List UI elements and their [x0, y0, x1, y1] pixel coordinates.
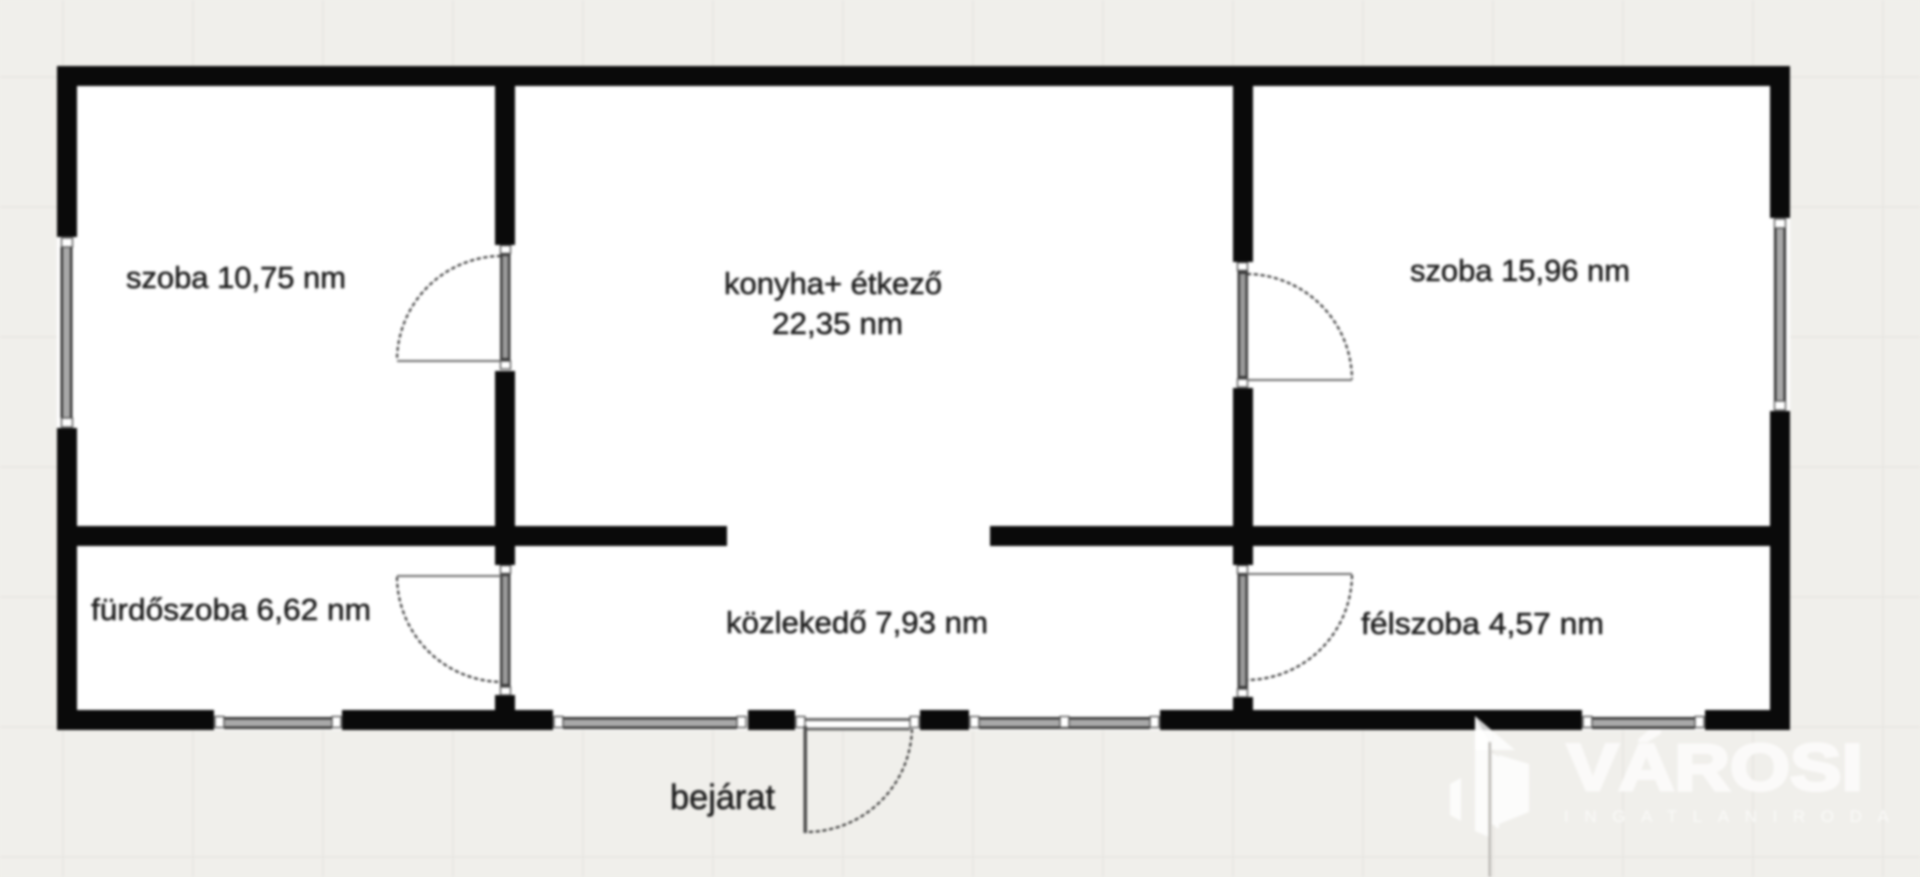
- svg-text:fürdőszoba 6,62 nm: fürdőszoba 6,62 nm: [91, 592, 371, 627]
- svg-text:félszoba 4,57 nm: félszoba 4,57 nm: [1361, 606, 1604, 641]
- svg-text:22,35 nm: 22,35 nm: [772, 306, 903, 341]
- svg-text:bejárat: bejárat: [670, 778, 775, 817]
- svg-text:szoba 15,96 nm: szoba 15,96 nm: [1410, 253, 1630, 288]
- svg-text:konyha+ étkező: konyha+ étkező: [724, 266, 942, 301]
- svg-text:szoba 10,75 nm: szoba 10,75 nm: [126, 260, 346, 295]
- svg-text:INGATLANIRODA: INGATLANIRODA: [1564, 807, 1904, 826]
- svg-text:közlekedő 7,93 nm: közlekedő 7,93 nm: [726, 605, 988, 640]
- svg-text:VÁROSI: VÁROSI: [1567, 730, 1863, 804]
